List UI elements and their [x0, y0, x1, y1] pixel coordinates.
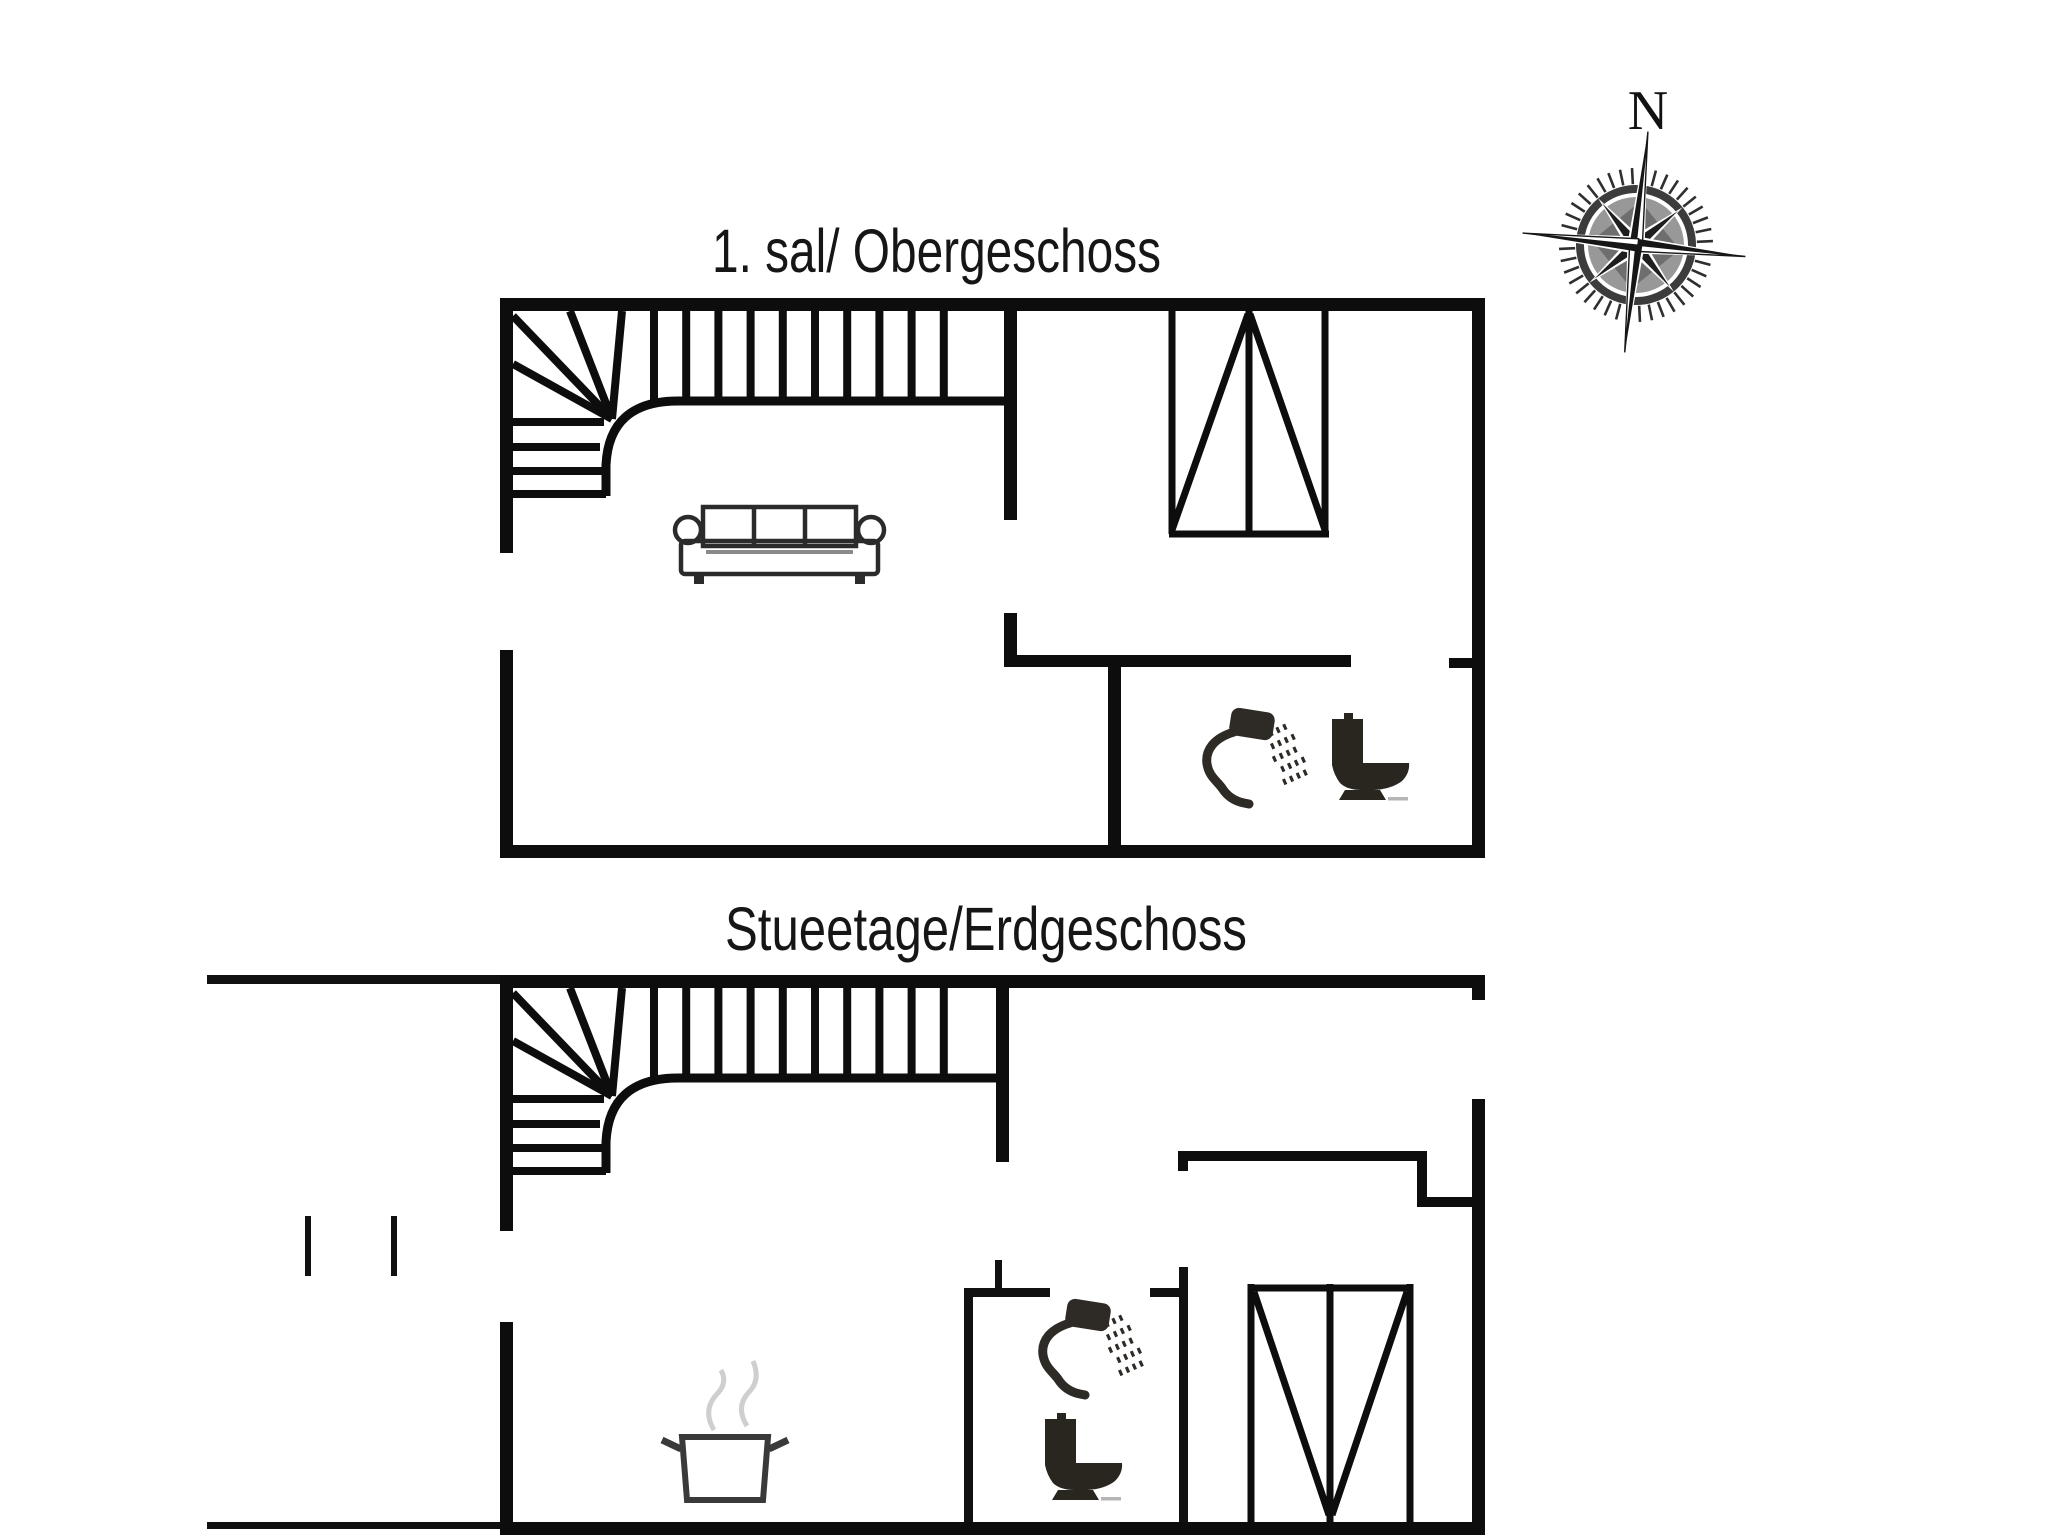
svg-text:N: N [1628, 80, 1668, 142]
svg-text:1. sal/ Obergeschoss: 1. sal/ Obergeschoss [712, 217, 1161, 285]
svg-text:Stueetage/Erdgeschoss: Stueetage/Erdgeschoss [725, 895, 1247, 963]
